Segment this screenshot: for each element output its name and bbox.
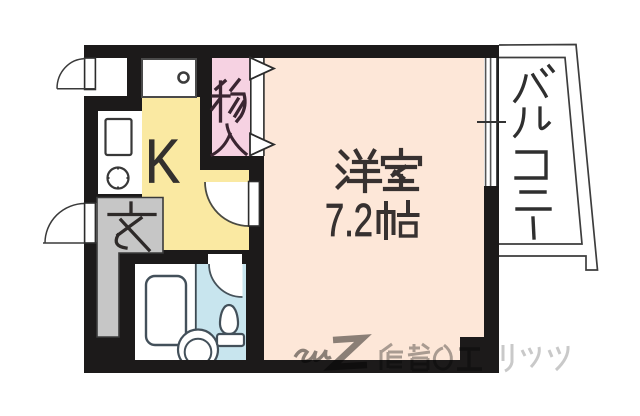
svg-text:K: K: [145, 128, 180, 197]
svg-text:7.2: 7.2: [325, 194, 373, 246]
